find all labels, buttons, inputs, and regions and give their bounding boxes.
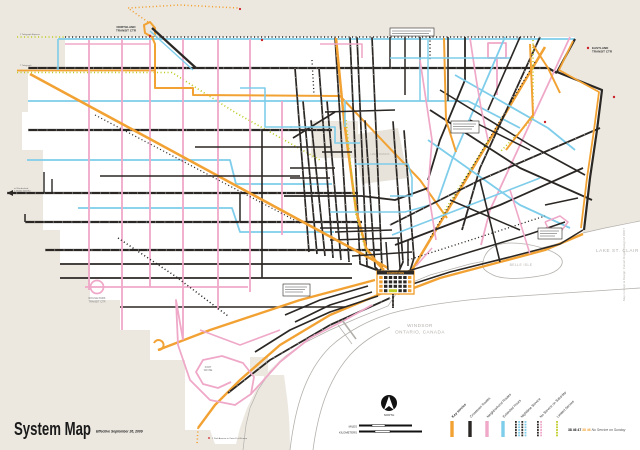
svg-text:TRANSIT CTR: TRANSIT CTR: [88, 300, 105, 304]
svg-text:Effective September 26, 2009: Effective September 26, 2009: [96, 430, 143, 434]
svg-text:MILES: MILES: [349, 425, 358, 429]
svg-text:1 Telegraph Express: 1 Telegraph Express: [20, 33, 41, 36]
svg-text:HAMTRAMCK: HAMTRAMCK: [370, 152, 389, 156]
svg-text:System Map: System Map: [14, 419, 91, 439]
svg-text:Map concept & Design: Calvert: Map concept & Design: Calvert Roger/Desi…: [622, 228, 626, 301]
svg-text:WINDSOR: WINDSOR: [407, 323, 433, 328]
svg-text:ONTARIO, CANADA: ONTARIO, CANADA: [395, 330, 445, 335]
svg-text:BELLE ISLE: BELLE ISLE: [510, 263, 533, 267]
svg-text:TRANSIT CTR: TRANSIT CTR: [116, 29, 137, 33]
svg-text:KILOMETERS: KILOMETERS: [339, 431, 357, 435]
svg-text:1 Park Avenue to Outer Dr & Ec: 1 Park Avenue to Outer Dr & Ecorse: [212, 437, 248, 440]
svg-text:TRANSIT CTR: TRANSIT CTR: [592, 50, 613, 54]
svg-text:WAYNE: WAYNE: [204, 369, 213, 372]
svg-text:LAKE ST. CLAIR: LAKE ST. CLAIR: [596, 248, 639, 253]
svg-text:ROUGE PARK: ROUGE PARK: [88, 296, 105, 300]
svg-text:7 Telegraph: 7 Telegraph: [20, 64, 32, 67]
svg-text:38 46 47 38 46 No Service on S: 38 46 47 38 46 No Service on Sunday: [568, 428, 626, 432]
svg-text:DOWNTOWN: DOWNTOWN: [387, 271, 404, 275]
svg-text:& Middle Belt Rd: & Middle Belt Rd: [14, 190, 31, 193]
svg-text:NORTH: NORTH: [384, 413, 395, 417]
